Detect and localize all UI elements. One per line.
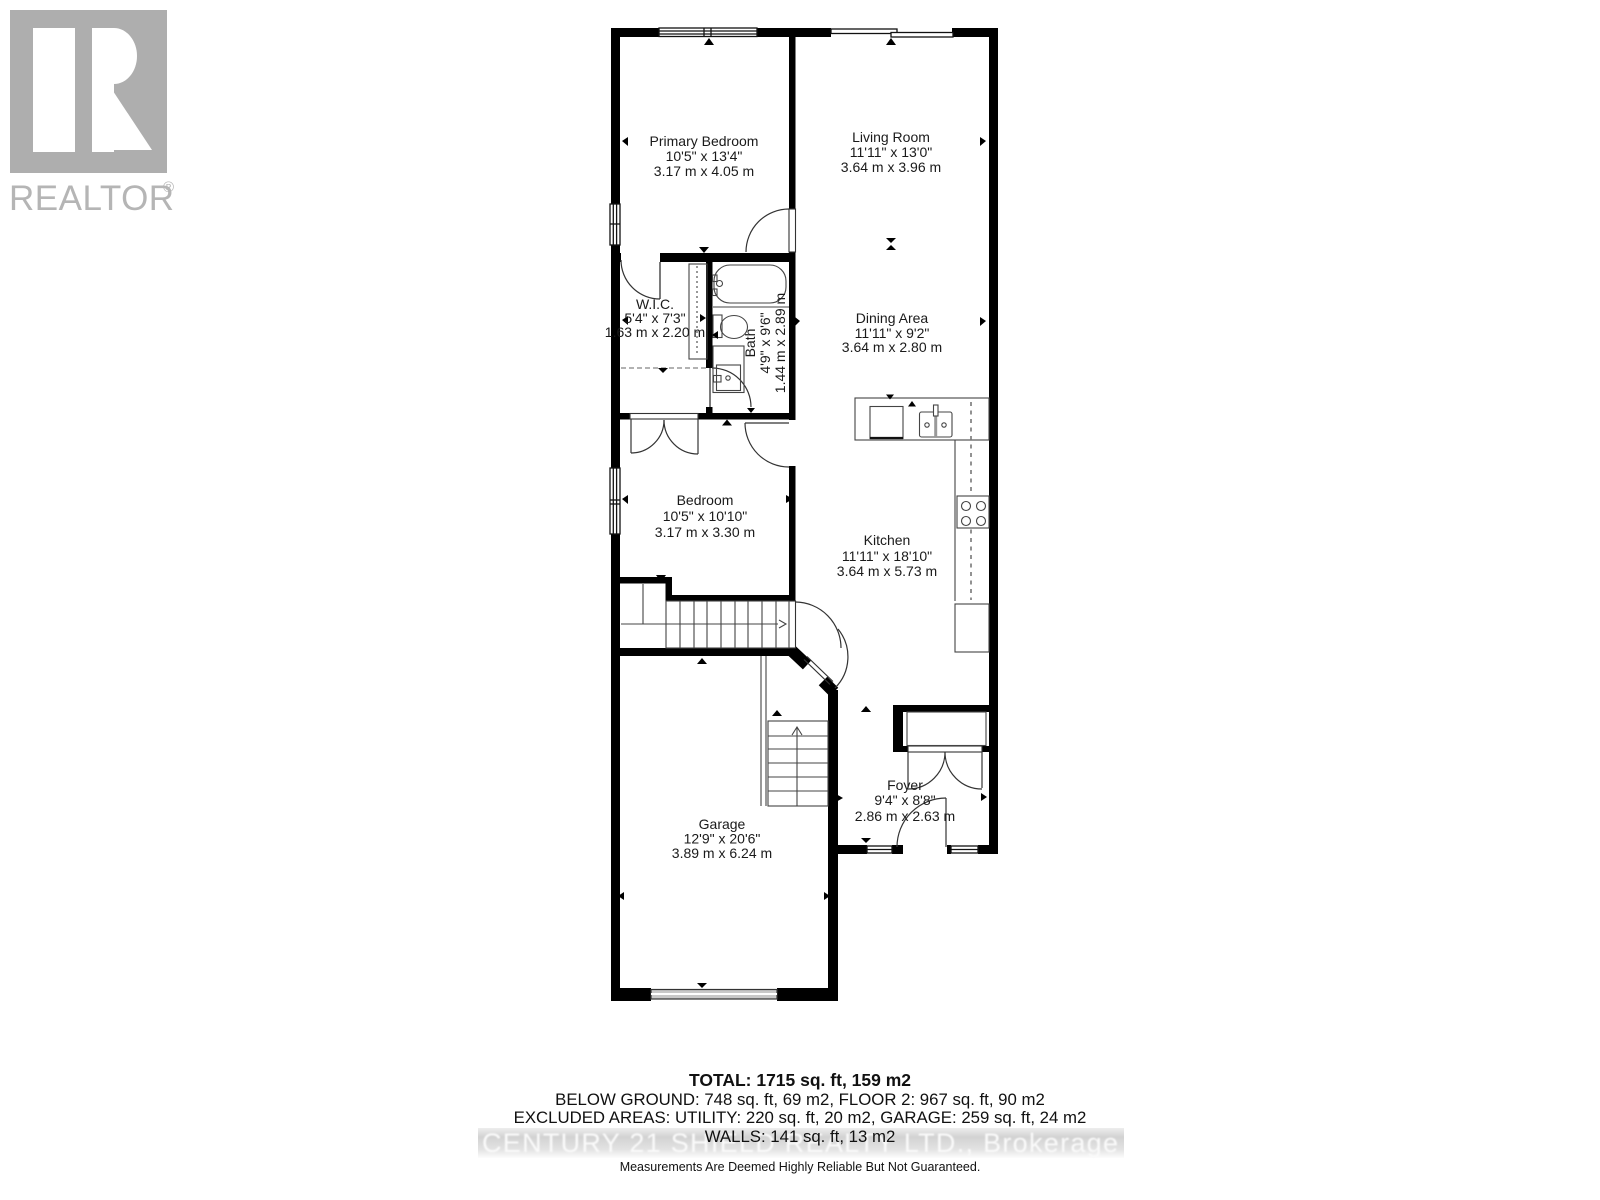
svg-text:Living Room: Living Room xyxy=(852,129,930,145)
svg-text:REALTOR: REALTOR xyxy=(9,179,175,218)
svg-text:3.64 m x 5.73 m: 3.64 m x 5.73 m xyxy=(837,563,937,579)
svg-text:9'4" x 8'8": 9'4" x 8'8" xyxy=(874,792,935,808)
svg-text:11'11" x 13'0": 11'11" x 13'0" xyxy=(850,144,933,160)
svg-text:3.64 m x 2.80 m: 3.64 m x 2.80 m xyxy=(842,339,942,355)
svg-text:2.86 m x 2.63 m: 2.86 m x 2.63 m xyxy=(855,808,955,824)
svg-text:4'9" x 9'6": 4'9" x 9'6" xyxy=(757,312,773,373)
svg-text:10'5" x 13'4": 10'5" x 13'4" xyxy=(666,148,743,164)
svg-text:3.89 m x 6.24 m: 3.89 m x 6.24 m xyxy=(672,845,772,861)
svg-text:3.64 m x 3.96 m: 3.64 m x 3.96 m xyxy=(841,159,941,175)
svg-text:3.17 m x 4.05 m: 3.17 m x 4.05 m xyxy=(654,163,754,179)
svg-text:Measurements Are Deemed Highly: Measurements Are Deemed Highly Reliable … xyxy=(620,1160,981,1174)
svg-text:10'5" x 10'10": 10'5" x 10'10" xyxy=(663,508,748,524)
svg-text:Dining Area: Dining Area xyxy=(856,310,929,326)
svg-text:®: ® xyxy=(163,179,174,196)
svg-text:EXCLUDED AREAS: UTILITY: 220 s: EXCLUDED AREAS: UTILITY: 220 sq. ft, 20 … xyxy=(514,1108,1087,1127)
svg-text:Bath: Bath xyxy=(742,329,758,358)
svg-text:Bedroom: Bedroom xyxy=(677,492,734,508)
svg-text:WALLS: 141 sq. ft, 13 m2: WALLS: 141 sq. ft, 13 m2 xyxy=(705,1127,896,1146)
svg-text:Primary Bedroom: Primary Bedroom xyxy=(650,133,759,149)
svg-text:3.17 m x 3.30 m: 3.17 m x 3.30 m xyxy=(655,524,755,540)
svg-text:TOTAL: 1715 sq. ft, 159 m2: TOTAL: 1715 sq. ft, 159 m2 xyxy=(689,1070,911,1090)
svg-text:1.63 m x 2.20 m: 1.63 m x 2.20 m xyxy=(605,324,705,340)
svg-text:BELOW GROUND: 748 sq. ft, 69 m: BELOW GROUND: 748 sq. ft, 69 m2, FLOOR 2… xyxy=(555,1090,1045,1109)
svg-text:Foyer: Foyer xyxy=(887,777,923,793)
svg-text:1.44 m x 2.89 m: 1.44 m x 2.89 m xyxy=(772,293,788,393)
svg-text:Kitchen: Kitchen xyxy=(864,532,911,548)
svg-text:11'11" x 18'10": 11'11" x 18'10" xyxy=(842,548,932,564)
